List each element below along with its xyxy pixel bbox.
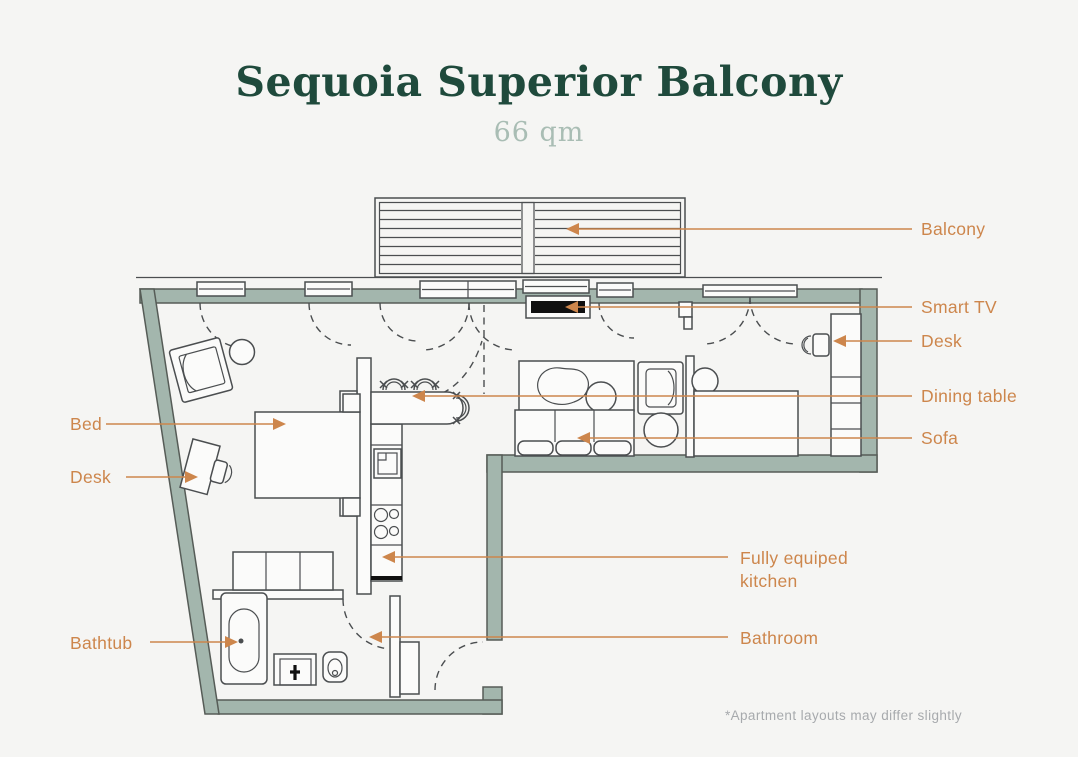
window [197, 282, 245, 296]
coffee-table [519, 361, 634, 412]
daybed [694, 391, 798, 456]
bed [255, 412, 360, 498]
ottoman [644, 413, 678, 447]
french-door-swing-arc [703, 297, 750, 344]
window [597, 283, 633, 297]
balcony-door [420, 281, 516, 298]
round-stool [692, 368, 718, 394]
bathroom-door-swing-arc [343, 599, 393, 649]
label-bathtub: Bathtub [70, 632, 132, 655]
bedroom-furniture [169, 337, 360, 590]
window [305, 282, 352, 296]
bedroom-desk [180, 439, 238, 499]
french-door-window [703, 285, 797, 297]
balcony-slats-left [380, 211, 521, 265]
window [523, 280, 589, 293]
footnote: *Apartment layouts may differ slightly [725, 708, 962, 723]
french-door-swing-arc [750, 297, 797, 344]
right-wall [860, 289, 877, 472]
hall-door-swing-arc [431, 341, 482, 398]
label-smart-tv: Smart TV [921, 296, 997, 319]
floor-plan-diagram [0, 0, 1078, 757]
desk-chair [802, 334, 829, 356]
label-balcony: Balcony [921, 218, 985, 241]
balcony-structure [136, 198, 882, 278]
label-bathroom: Bathroom [740, 627, 818, 650]
window-swing-arc [309, 303, 351, 345]
living-bottom-wall [487, 455, 877, 472]
label-desk-living: Desk [921, 330, 962, 353]
balcony-door-swing-arc [469, 303, 516, 350]
wardrobe [233, 552, 333, 590]
side-table [230, 340, 255, 365]
pillar-step [684, 317, 692, 329]
label-sofa: Sofa [921, 427, 958, 450]
hall-cabinet [400, 642, 419, 694]
sink-vanity [274, 654, 316, 685]
kitchen-leader [382, 551, 728, 563]
bathroom-leader [369, 631, 728, 643]
balcony-door-swing-arc [380, 303, 418, 341]
label-desk-bedroom: Desk [70, 466, 111, 489]
label-bed: Bed [70, 413, 102, 436]
nightstand [343, 498, 360, 516]
living-armchair [638, 362, 683, 414]
armchair [169, 337, 233, 403]
living-partition-wall [686, 356, 694, 457]
corridor-right-wall [487, 455, 502, 640]
balcony-leader [566, 223, 912, 235]
balcony-door-swing-arc [422, 303, 469, 350]
kitchen-furniture [371, 379, 469, 581]
bottom-wall [205, 700, 502, 714]
sofa [515, 410, 634, 456]
bar-stool [411, 379, 439, 390]
kitchen-sink [374, 449, 401, 478]
bathroom-right-wall [390, 596, 400, 697]
nightstand [343, 394, 360, 412]
toilet [323, 652, 347, 682]
desk-bedroom-leader [126, 471, 198, 483]
window-swing-arc [599, 303, 634, 338]
floor-plan-page: Sequoia Superior Balcony 66 qm [0, 0, 1078, 757]
label-kitchen: Fully equiped kitchen [740, 547, 875, 593]
balcony-divider [522, 203, 534, 274]
entry-door-swing-arc [435, 642, 483, 690]
pillar [679, 302, 692, 317]
balcony-slats-right [535, 211, 680, 265]
label-dining-table: Dining table [921, 385, 1017, 408]
bar-stool [380, 379, 408, 390]
oven-front [371, 576, 402, 580]
